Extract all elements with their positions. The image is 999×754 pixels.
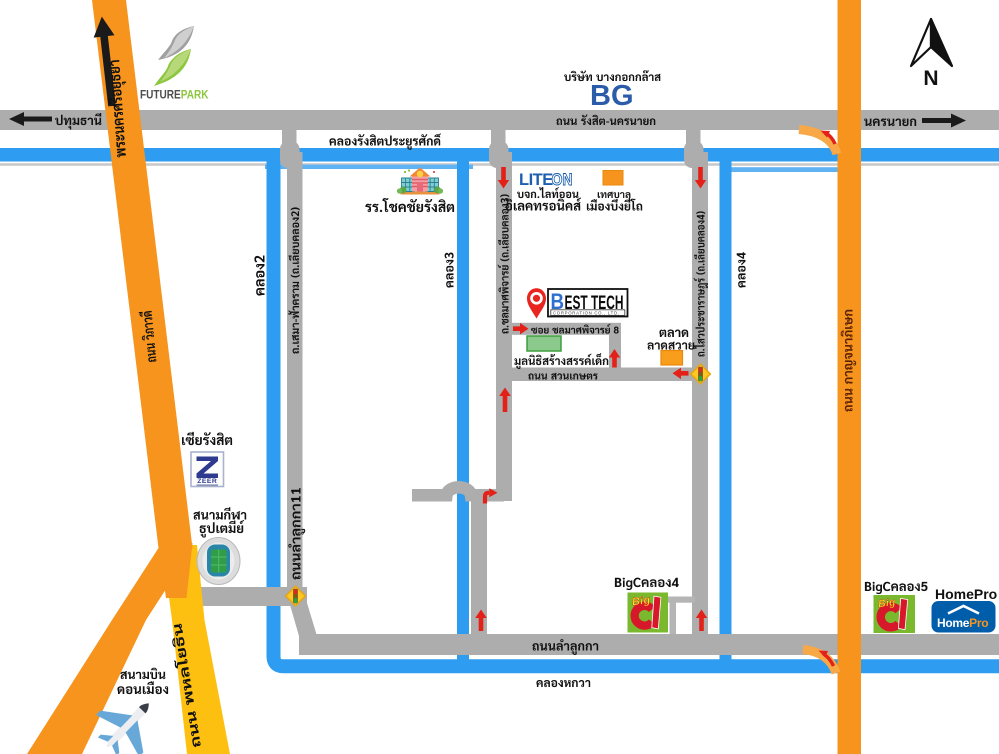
svg-text:N: N [923, 67, 938, 90]
svg-text:FUTUREPARK: FUTUREPARK [140, 88, 209, 102]
svg-text:HomePro: HomePro [937, 616, 988, 630]
svg-text:BG: BG [590, 80, 634, 112]
svg-text:LITE: LITE [519, 171, 553, 189]
svg-text:CORPORATION CO., LTD.: CORPORATION CO., LTD. [553, 311, 619, 316]
svg-text:Big: Big [631, 594, 651, 608]
svg-text:ON: ON [552, 171, 573, 189]
svg-text:HomePro: HomePro [935, 586, 997, 602]
svg-text:ZEER: ZEER [197, 478, 217, 485]
svg-text:Big: Big [878, 597, 897, 610]
